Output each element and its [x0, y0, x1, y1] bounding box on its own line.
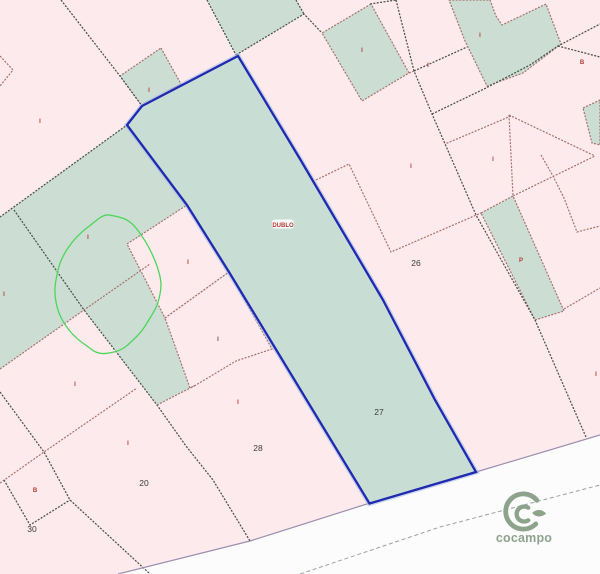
svg-text:28: 28	[253, 443, 263, 453]
svg-text:27: 27	[374, 407, 384, 417]
svg-text:P: P	[519, 258, 523, 264]
svg-text:cocampo: cocampo	[496, 531, 552, 545]
svg-text:30: 30	[27, 524, 37, 534]
svg-text:26: 26	[411, 258, 421, 268]
svg-text:20: 20	[139, 478, 149, 488]
svg-text:B: B	[580, 60, 585, 66]
svg-text:B: B	[33, 488, 38, 494]
svg-text:DUBLO: DUBLO	[272, 223, 294, 229]
